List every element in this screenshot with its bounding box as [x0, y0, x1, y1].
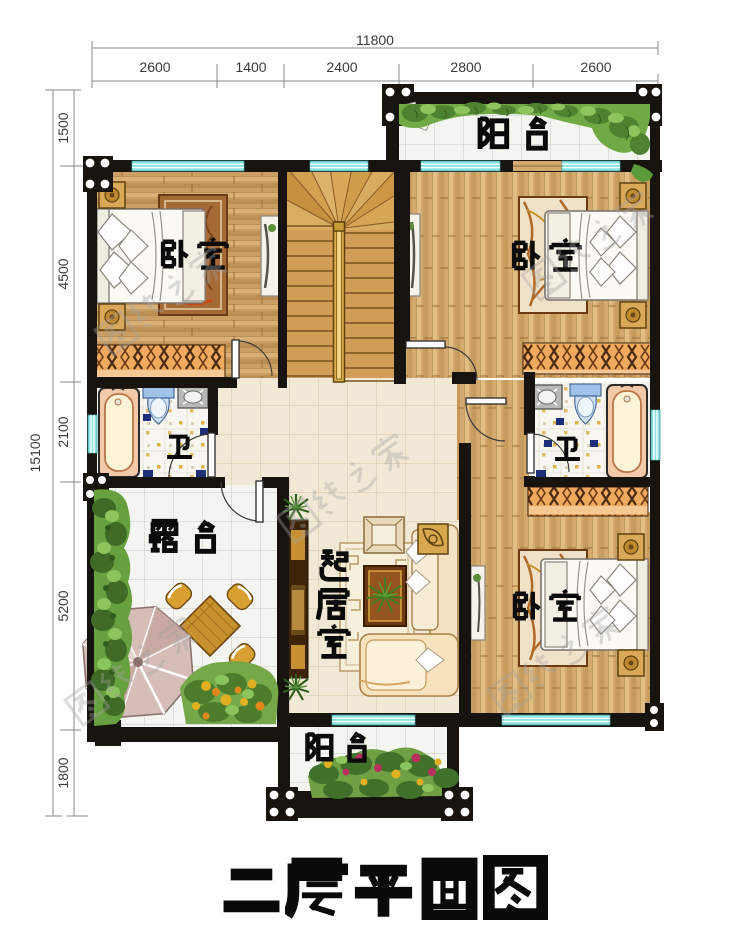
svg-text:2600: 2600 — [580, 59, 611, 75]
svg-text:15100: 15100 — [27, 433, 43, 472]
svg-text:4500: 4500 — [55, 258, 71, 289]
svg-text:2800: 2800 — [450, 59, 481, 75]
svg-text:2600: 2600 — [139, 59, 170, 75]
svg-text:11800: 11800 — [356, 32, 394, 48]
svg-text:2400: 2400 — [326, 59, 357, 75]
svg-text:1800: 1800 — [55, 757, 71, 788]
svg-text:1400: 1400 — [235, 59, 266, 75]
svg-text:5200: 5200 — [55, 590, 71, 621]
svg-text:1500: 1500 — [55, 112, 71, 143]
svg-text:2100: 2100 — [55, 416, 71, 447]
